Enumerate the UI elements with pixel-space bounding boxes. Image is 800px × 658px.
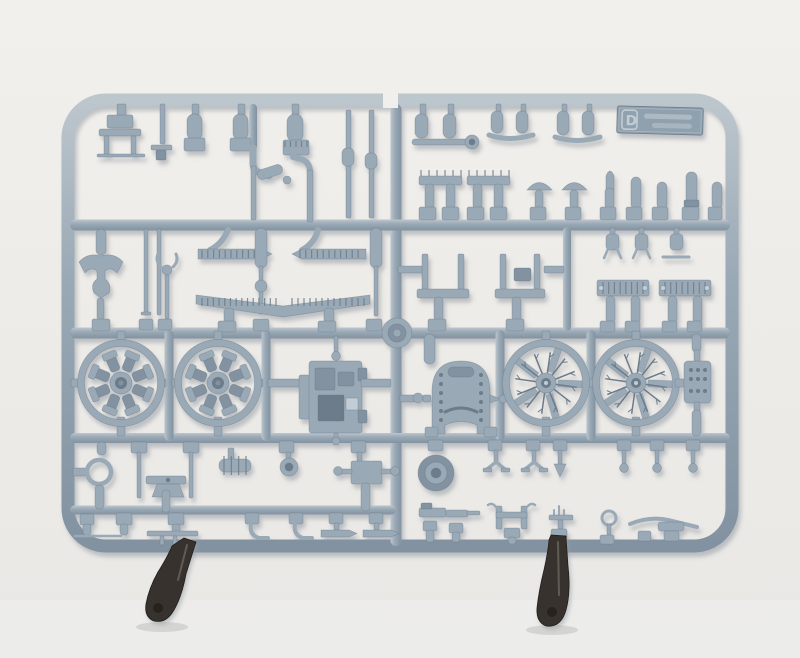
sprue-part bbox=[415, 114, 428, 138]
stub bbox=[544, 266, 564, 273]
skid-part bbox=[147, 531, 198, 536]
sprue-part bbox=[424, 334, 435, 364]
gate-block bbox=[428, 440, 443, 451]
sprue-part bbox=[120, 524, 128, 535]
radiator-part bbox=[659, 280, 711, 296]
sprue-part bbox=[452, 532, 460, 542]
sprue-part bbox=[516, 111, 528, 133]
sprue-part bbox=[605, 188, 614, 209]
sprue-part bbox=[570, 190, 578, 209]
sprue-part bbox=[535, 190, 543, 209]
gate-block bbox=[279, 441, 294, 453]
sprue-part bbox=[421, 503, 432, 509]
gate-block bbox=[329, 513, 343, 524]
sprue-part bbox=[431, 468, 441, 478]
sprue-part bbox=[166, 478, 170, 482]
sprue-part bbox=[83, 524, 91, 535]
engine-bearer-part bbox=[419, 176, 462, 185]
gun-barrel-part bbox=[412, 139, 469, 145]
carburetor-part bbox=[351, 461, 382, 484]
sprue-part bbox=[661, 286, 666, 291]
cockpit-floor-part bbox=[495, 289, 545, 298]
sprue-part bbox=[156, 150, 166, 160]
rod bbox=[160, 104, 165, 144]
gate-block bbox=[158, 319, 172, 330]
sprue-part bbox=[346, 398, 358, 410]
gate-block bbox=[506, 319, 524, 331]
sprue-part bbox=[287, 114, 303, 142]
gate-block bbox=[600, 207, 616, 220]
sprue-part bbox=[668, 296, 677, 323]
gate-block bbox=[183, 442, 199, 453]
gate-block bbox=[708, 207, 722, 220]
sprue-part bbox=[606, 296, 615, 323]
sprue-part bbox=[684, 200, 699, 207]
sprue-photo: D bbox=[0, 0, 800, 658]
gate-block bbox=[366, 319, 382, 331]
sprue-part bbox=[448, 367, 474, 377]
sprue-part bbox=[255, 228, 267, 268]
sprue-part bbox=[160, 536, 164, 545]
gate-block bbox=[419, 207, 436, 220]
runner-rail bbox=[563, 227, 571, 331]
sprue-part bbox=[315, 368, 335, 390]
stub bbox=[675, 379, 685, 387]
ball-strut-part bbox=[620, 464, 629, 473]
gate-block bbox=[184, 138, 205, 151]
gate-block bbox=[442, 207, 459, 220]
drilled-plate-part bbox=[684, 361, 711, 403]
sprue-part bbox=[393, 329, 401, 337]
gate-block bbox=[530, 207, 546, 220]
sprue-part bbox=[658, 522, 684, 531]
sprue-part bbox=[599, 286, 604, 291]
sprue-part bbox=[712, 182, 722, 209]
gate-block bbox=[92, 319, 110, 331]
sprue-part bbox=[97, 442, 106, 455]
gate-block bbox=[351, 441, 366, 453]
gate-block bbox=[139, 319, 153, 330]
stub bbox=[292, 104, 299, 115]
gate-block bbox=[553, 440, 567, 451]
runner-cut-gap bbox=[383, 92, 398, 108]
gate-block bbox=[686, 440, 700, 451]
gate-block bbox=[638, 531, 651, 541]
sprue-part bbox=[692, 410, 701, 436]
photo-backdrop: D bbox=[0, 0, 800, 658]
gate-block bbox=[600, 321, 615, 332]
rod bbox=[137, 452, 141, 498]
clip-shadow bbox=[136, 622, 188, 632]
ball-joint-part bbox=[162, 265, 172, 275]
sprue-part bbox=[483, 468, 492, 472]
sprue-part bbox=[467, 511, 480, 515]
sprue-part bbox=[491, 111, 503, 133]
stub bbox=[238, 104, 245, 115]
sprue-part bbox=[423, 395, 431, 402]
gate-block bbox=[650, 440, 664, 451]
sprue-part bbox=[338, 372, 354, 386]
sprue-part bbox=[318, 395, 344, 421]
engine-bearer-part bbox=[467, 176, 510, 185]
sprue-part bbox=[473, 184, 482, 209]
gate-block bbox=[253, 319, 269, 331]
sprue-part bbox=[307, 170, 313, 222]
sprue-part bbox=[425, 427, 438, 437]
ball-strut-part bbox=[689, 464, 698, 473]
gate-block bbox=[662, 321, 677, 332]
rod bbox=[157, 229, 161, 315]
sprue-part bbox=[484, 427, 497, 437]
gate-block bbox=[218, 321, 236, 332]
rod bbox=[144, 229, 148, 315]
sprue-part bbox=[496, 512, 527, 518]
sprue-part bbox=[425, 184, 434, 209]
sprue-part bbox=[426, 530, 434, 542]
sprue-part bbox=[606, 234, 619, 250]
sprue-part bbox=[370, 228, 382, 268]
ball-strut-part bbox=[653, 464, 662, 473]
sprue-part bbox=[299, 375, 310, 419]
sprue-part bbox=[334, 523, 339, 530]
backdrop-lower-band bbox=[0, 600, 800, 658]
sprue-part bbox=[413, 393, 423, 403]
sprue-part bbox=[622, 450, 626, 464]
sprue-part bbox=[694, 350, 700, 362]
sprue-part bbox=[434, 297, 443, 321]
gate-block bbox=[526, 440, 540, 451]
sprue-part bbox=[104, 136, 109, 155]
sprue-letter: D bbox=[625, 113, 637, 129]
sprue-part bbox=[557, 111, 569, 135]
gate-block bbox=[369, 513, 383, 524]
gate-block bbox=[318, 321, 336, 332]
gate-block bbox=[131, 442, 147, 453]
sprue-part bbox=[501, 468, 510, 472]
sprue-part bbox=[255, 280, 267, 292]
gate-block bbox=[230, 138, 251, 151]
sprue-part bbox=[631, 177, 641, 209]
stub bbox=[448, 104, 454, 115]
cockpit-floor-part bbox=[417, 289, 469, 298]
seat-box-part bbox=[514, 268, 531, 281]
gate-block bbox=[467, 207, 484, 220]
gate-block bbox=[428, 319, 446, 331]
radiator-part bbox=[597, 280, 649, 296]
sprue-part bbox=[512, 297, 521, 321]
stub bbox=[398, 266, 424, 273]
sprue-part bbox=[635, 234, 648, 250]
gate-block bbox=[504, 528, 520, 538]
sprue-part bbox=[443, 114, 456, 138]
gate-block bbox=[687, 321, 702, 332]
sprue-part bbox=[285, 463, 293, 471]
linkage-part bbox=[321, 530, 357, 537]
sprue-part bbox=[631, 296, 640, 323]
gate-block bbox=[449, 523, 463, 533]
sprue-part bbox=[251, 166, 256, 220]
gate-block bbox=[664, 531, 679, 541]
spinner-part bbox=[606, 171, 614, 190]
sprue-part bbox=[97, 298, 104, 320]
gate-block bbox=[80, 514, 94, 525]
sprue-part bbox=[446, 184, 455, 209]
sprue-part bbox=[693, 296, 702, 323]
sprue-part bbox=[705, 286, 710, 291]
sprue-part bbox=[131, 136, 136, 155]
sprue-part bbox=[689, 389, 707, 393]
sprue-part bbox=[582, 111, 594, 135]
gate-block bbox=[600, 535, 614, 544]
sprue-part bbox=[334, 467, 343, 476]
sprue-part bbox=[342, 148, 354, 166]
rod bbox=[189, 452, 193, 498]
gate-block bbox=[565, 207, 581, 220]
sprue-part bbox=[332, 437, 340, 445]
sprue-part bbox=[508, 537, 516, 544]
sprue-part bbox=[233, 114, 248, 140]
gate-block bbox=[682, 207, 699, 220]
sprue-part bbox=[358, 410, 367, 423]
linkage-part bbox=[363, 530, 399, 537]
gunsight-part bbox=[151, 145, 172, 150]
sprue-part bbox=[141, 312, 151, 315]
sprue-part bbox=[374, 266, 378, 316]
gate-block bbox=[423, 521, 437, 531]
sprue-part bbox=[539, 468, 548, 472]
stub bbox=[96, 229, 106, 255]
sprue-part bbox=[391, 467, 400, 476]
sprue-part bbox=[332, 352, 341, 361]
sprue-part bbox=[549, 515, 573, 520]
sprue-part bbox=[165, 275, 169, 319]
sprue-part bbox=[494, 184, 503, 209]
sprue-part bbox=[361, 483, 370, 511]
sprue-id-tag: D bbox=[617, 106, 704, 135]
sprue-part bbox=[670, 234, 683, 250]
stub bbox=[192, 104, 199, 115]
sprue-part bbox=[521, 468, 530, 472]
gate-block bbox=[652, 207, 668, 220]
sprue-part bbox=[692, 334, 701, 352]
sprue-part bbox=[657, 182, 667, 209]
tag-embossed-line bbox=[652, 123, 692, 129]
sprue-part bbox=[187, 114, 202, 140]
gate-block bbox=[107, 115, 133, 128]
clip-shadow bbox=[526, 625, 578, 635]
sprue-part bbox=[558, 450, 562, 465]
sprue-part bbox=[643, 286, 648, 291]
runner-rail bbox=[70, 220, 730, 231]
gate-block bbox=[168, 513, 184, 525]
sprue-part bbox=[162, 490, 170, 512]
gate-block bbox=[626, 207, 642, 220]
sprue-part bbox=[446, 510, 468, 517]
sprue-part bbox=[691, 450, 695, 464]
stub bbox=[268, 379, 302, 387]
sprue-part bbox=[374, 523, 379, 530]
stub bbox=[117, 104, 126, 116]
sprue-part bbox=[365, 153, 377, 169]
sprue-part bbox=[469, 139, 475, 145]
gate-block bbox=[488, 440, 502, 451]
sprue-part bbox=[95, 485, 104, 509]
gate-block bbox=[490, 207, 507, 220]
sprue-part bbox=[283, 176, 291, 184]
stub bbox=[361, 379, 391, 387]
sprue-part bbox=[97, 154, 145, 157]
gate-block bbox=[617, 440, 631, 451]
gate-block bbox=[625, 321, 640, 332]
bench-table-part bbox=[99, 129, 141, 136]
gate-block bbox=[116, 513, 132, 525]
sprue-part bbox=[655, 450, 659, 464]
